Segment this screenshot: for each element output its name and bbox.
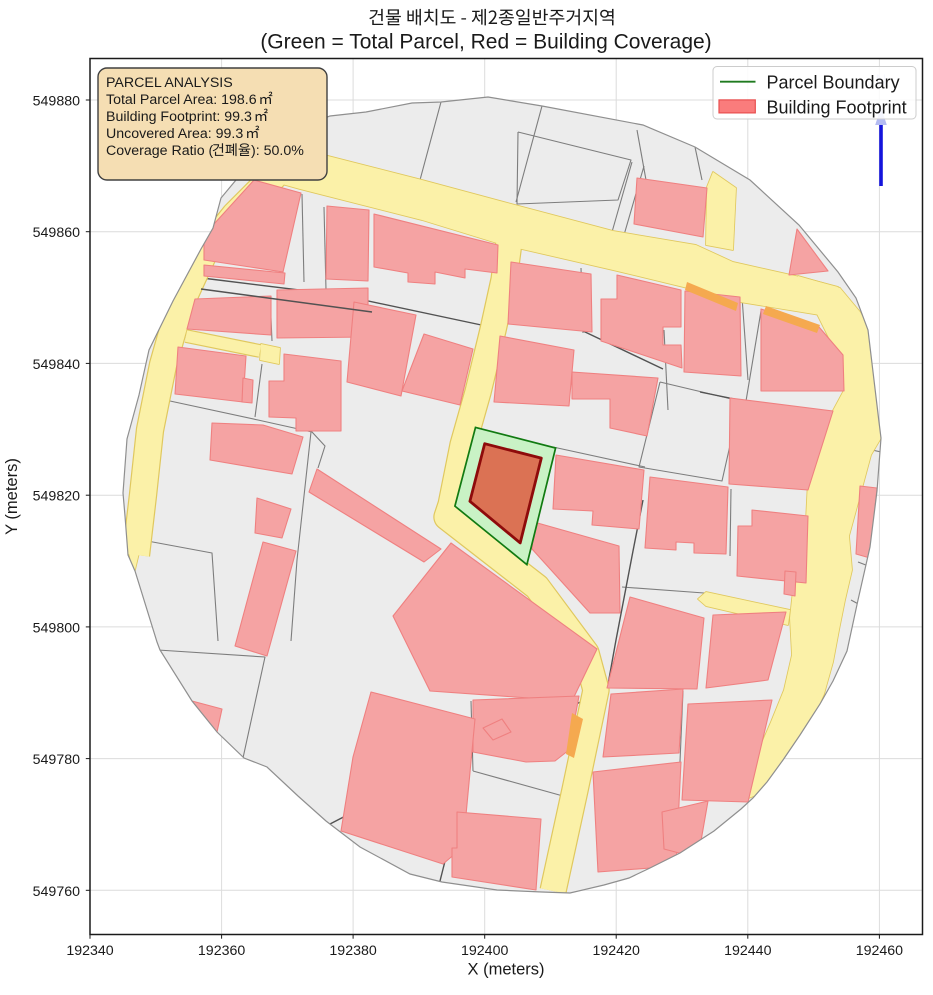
svg-text:X (meters): X (meters) — [467, 961, 544, 979]
svg-text:549840: 549840 — [33, 357, 80, 373]
svg-text:549800: 549800 — [33, 620, 80, 636]
svg-text:(Green = Total Parcel, Red = B: (Green = Total Parcel, Red = Building Co… — [260, 31, 711, 54]
svg-text:Uncovered Area: 99.3: Uncovered Area: 99.3 — [106, 126, 243, 142]
svg-text:Building Footprint: 99.3: Building Footprint: 99.3 — [106, 109, 252, 125]
svg-text:549780: 549780 — [33, 752, 80, 768]
svg-text:PARCEL ANALYSIS: PARCEL ANALYSIS — [106, 75, 233, 91]
svg-text:192360: 192360 — [198, 943, 245, 959]
svg-text:): 50.0%: ): 50.0% — [251, 143, 304, 159]
svg-text:549760: 549760 — [33, 884, 80, 900]
svg-text:192400: 192400 — [461, 943, 508, 959]
svg-text:Y (meters): Y (meters) — [3, 458, 21, 535]
svg-text:192380: 192380 — [329, 943, 376, 959]
svg-text:192340: 192340 — [66, 943, 113, 959]
svg-text:Total Parcel Area: 198.6: Total Parcel Area: 198.6 — [106, 92, 257, 108]
svg-text:192460: 192460 — [856, 943, 903, 959]
svg-text:549820: 549820 — [33, 489, 80, 505]
svg-text:Parcel Boundary: Parcel Boundary — [767, 73, 900, 93]
svg-text:Building Footprint: Building Footprint — [767, 98, 907, 118]
svg-text:549860: 549860 — [33, 225, 80, 241]
svg-text:549880: 549880 — [33, 94, 80, 110]
svg-text:Coverage Ratio (: Coverage Ratio ( — [106, 143, 214, 159]
svg-text:192440: 192440 — [724, 943, 771, 959]
svg-text:192420: 192420 — [593, 943, 640, 959]
